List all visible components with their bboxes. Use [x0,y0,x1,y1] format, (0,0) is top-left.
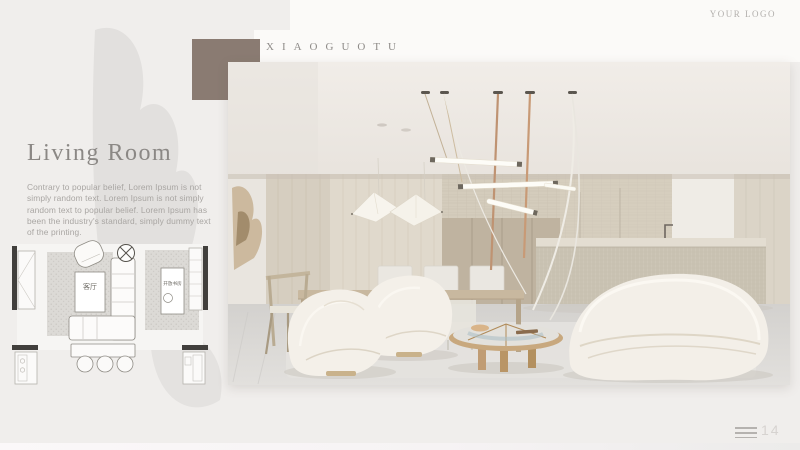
plan-label-study-text: 开放书房 [163,280,182,287]
plan-label-living: 客厅 [75,272,105,312]
plan-window-left [18,251,35,309]
footer-gradient-bar [0,443,800,450]
plan-cabinets-bottom-right [183,352,205,384]
plan-stools [77,356,133,372]
section-title: Living Room [27,140,172,167]
plan-label-living-text: 客厅 [83,282,97,291]
plan-table [71,344,135,357]
brand-name: XIAOGUOTU [266,41,404,53]
plan-label-study: 开放书房 [161,268,184,314]
logo-text: YOUR LOGO [710,9,776,19]
menu-icon[interactable] [735,427,757,439]
page-number: 14 [761,422,781,438]
slide: XIAOGUOTU YOUR LOGO Living Room Contrary… [0,0,800,450]
floor-plan: 客厅 开放书房 [5,238,215,390]
table-decor [471,325,489,332]
plan-cabinets-right [189,248,202,310]
plan-cabinets-bottom-left [15,352,37,384]
plan-fan-symbol [118,245,135,262]
section-description: Contrary to popular belief, Lorem Ipsum … [27,182,215,238]
living-room-photo [228,62,790,385]
